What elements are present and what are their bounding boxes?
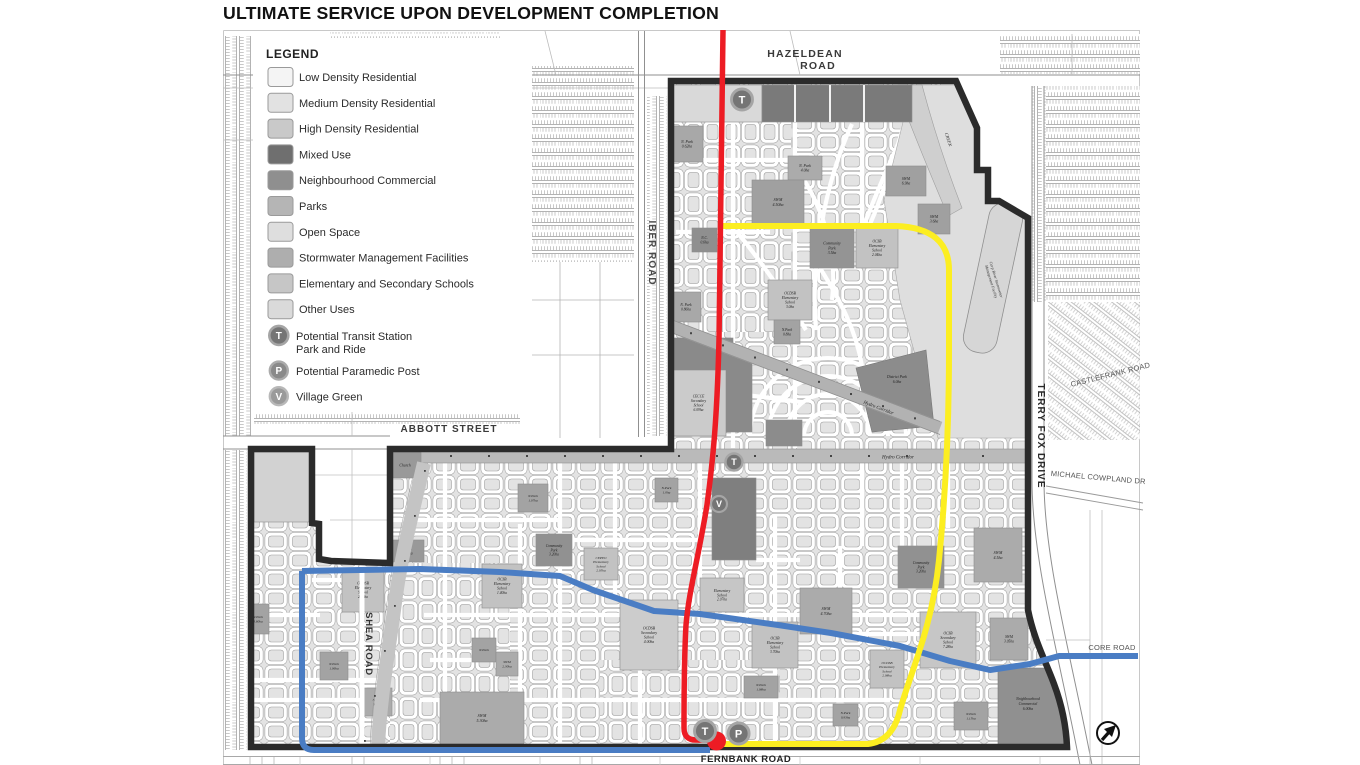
svg-text:SWM: SWM (930, 215, 939, 219)
svg-text:School: School (785, 301, 795, 305)
svg-text:Community: Community (913, 561, 930, 565)
svg-text:T: T (702, 726, 709, 738)
svg-text:Neighbourhood: Neighbourhood (1015, 697, 1040, 701)
svg-text:6.0ha: 6.0ha (893, 380, 902, 384)
svg-text:T: T (731, 457, 737, 467)
svg-text:Elementary: Elementary (493, 582, 511, 586)
svg-text:OCSB: OCSB (498, 578, 508, 582)
svg-text:3.5ha: 3.5ha (828, 251, 837, 255)
svg-text:Village Green: Village Green (296, 392, 362, 404)
svg-text:School: School (717, 593, 727, 597)
svg-text:P: P (275, 366, 282, 377)
svg-text:3.05ha: 3.05ha (1004, 640, 1014, 644)
svg-text:Stormwater Management Faciliti: Stormwater Management Facilities (299, 253, 469, 265)
svg-text:Low Density Residential: Low Density Residential (299, 72, 416, 84)
svg-text:N.C.: N.C. (700, 236, 708, 240)
svg-text:Hydro Corridor: Hydro Corridor (881, 456, 914, 461)
svg-text:6.00ha: 6.00ha (1023, 707, 1034, 711)
svg-text:4.5ha: 4.5ha (994, 555, 1003, 560)
svg-text:Neighbourhood Commercial: Neighbourhood Commercial (299, 175, 436, 187)
svg-text:Elementary and Secondary Schoo: Elementary and Secondary Schools (299, 278, 474, 290)
svg-text:0.62ha: 0.62ha (682, 145, 693, 149)
svg-text:TERRY FOX DRIVE: TERRY FOX DRIVE (1035, 383, 1046, 488)
svg-text:0.86ha: 0.86ha (681, 308, 691, 312)
svg-text:0.8ha: 0.8ha (783, 333, 791, 337)
svg-text:Medium Density Residential: Medium Density Residential (299, 98, 435, 110)
svg-text:T: T (276, 331, 282, 342)
svg-text:4.50ha: 4.50ha (773, 202, 784, 207)
svg-text:4.0ha: 4.0ha (801, 169, 810, 173)
svg-text:1.0ha: 1.0ha (663, 490, 671, 494)
svg-text:District Park: District Park (886, 375, 907, 379)
svg-text:N.Park: N.Park (781, 328, 793, 332)
svg-text:V: V (275, 392, 282, 403)
svg-text:2.05ha: 2.05ha (596, 569, 606, 573)
svg-text:ULTIMATE SERVICE UPON DEVELOPM: ULTIMATE SERVICE UPON DEVELOPMENT COMPLE… (223, 3, 719, 23)
svg-text:School: School (644, 636, 654, 640)
svg-text:CORE ROAD: CORE ROAD (1088, 643, 1136, 652)
svg-text:3.0ha: 3.0ha (786, 305, 794, 309)
svg-text:1.06ha: 1.06ha (329, 666, 339, 670)
svg-text:SWM: SWM (902, 177, 911, 181)
svg-text:SWM: SWM (1005, 635, 1014, 639)
svg-text:1.15ha: 1.15ha (966, 716, 976, 720)
svg-text:N. Park: N. Park (680, 140, 693, 144)
svg-text:1.07ha: 1.07ha (528, 498, 538, 502)
svg-text:Potential Transit Station: Potential Transit Station (296, 331, 412, 343)
svg-text:1.08ha: 1.08ha (756, 687, 766, 691)
svg-text:Secondary: Secondary (641, 631, 657, 635)
svg-text:2.30ha: 2.30ha (502, 664, 512, 668)
svg-text:OCDSB: OCDSB (784, 292, 796, 296)
svg-text:Open Space: Open Space (299, 227, 360, 239)
svg-text:2.08ha: 2.08ha (882, 674, 892, 678)
svg-text:OCDSB: OCDSB (643, 626, 656, 630)
svg-text:OCSB: OCSB (771, 637, 781, 641)
svg-text:0.80ha: 0.80ha (253, 619, 263, 623)
svg-text:School: School (872, 249, 882, 253)
svg-text:LEGEND: LEGEND (266, 47, 319, 61)
svg-text:2.04ha: 2.04ha (872, 253, 882, 257)
svg-text:Secondary: Secondary (691, 399, 707, 403)
svg-text:CECCE: CECCE (693, 395, 705, 399)
svg-text:3.20ha: 3.20ha (549, 553, 559, 557)
svg-text:School: School (943, 641, 953, 645)
svg-text:Park and Ride: Park and Ride (296, 344, 366, 356)
svg-text:6.9ha: 6.9ha (902, 182, 911, 186)
svg-text:3.20ha: 3.20ha (916, 570, 926, 574)
svg-text:Community: Community (823, 242, 841, 246)
svg-text:OCSB: OCSB (944, 632, 954, 636)
svg-text:Elementary: Elementary (781, 296, 799, 300)
svg-text:Parks: Parks (299, 201, 328, 213)
svg-text:Commercial: Commercial (1019, 702, 1038, 706)
svg-text:Potential Paramedic Post: Potential Paramedic Post (296, 366, 420, 378)
svg-text:4.00ha: 4.00ha (644, 640, 655, 644)
svg-text:1.40ha: 1.40ha (497, 591, 507, 595)
svg-text:N.Park: N.Park (478, 648, 489, 652)
svg-text:5.30ha: 5.30ha (477, 718, 488, 723)
svg-text:Park: Park (917, 565, 925, 569)
svg-text:Community: Community (546, 544, 563, 548)
svg-text:4.70ha: 4.70ha (821, 611, 832, 616)
svg-text:HAZELDEAN: HAZELDEAN (767, 48, 843, 60)
svg-text:Mixed Use: Mixed Use (299, 149, 351, 161)
svg-text:School: School (770, 646, 780, 650)
svg-text:6.09ha: 6.09ha (694, 408, 704, 412)
svg-text:V: V (716, 499, 722, 509)
svg-text:School: School (694, 404, 704, 408)
svg-text:0.6ha: 0.6ha (700, 241, 708, 245)
svg-text:Church: Church (399, 463, 410, 467)
svg-text:2.07ha: 2.07ha (717, 598, 727, 602)
svg-text:Park: Park (550, 548, 558, 552)
svg-text:N. Park: N. Park (798, 164, 811, 168)
svg-text:ROAD: ROAD (800, 60, 836, 72)
svg-text:0.93ha: 0.93ha (841, 715, 851, 719)
svg-text:High Density Residential: High Density Residential (299, 124, 419, 136)
svg-text:FERNBANK ROAD: FERNBANK ROAD (701, 754, 791, 765)
svg-text:OCSB: OCSB (873, 240, 883, 244)
svg-text:ABBOTT STREET: ABBOTT STREET (401, 424, 498, 435)
svg-text:Elementary: Elementary (713, 589, 731, 593)
svg-text:N. Park: N. Park (679, 303, 692, 307)
svg-text:Park: Park (827, 246, 836, 250)
svg-text:SHEA ROAD: SHEA ROAD (363, 612, 374, 676)
svg-text:7.28ha: 7.28ha (943, 645, 953, 649)
svg-text:Secondary: Secondary (940, 636, 956, 640)
svg-text:Elementary: Elementary (766, 641, 784, 645)
svg-text:P: P (735, 729, 742, 741)
svg-text:Other Uses: Other Uses (299, 304, 355, 316)
svg-text:T: T (739, 95, 746, 107)
svg-text:School: School (497, 587, 507, 591)
svg-text:Elementary: Elementary (868, 244, 886, 248)
svg-text:3.6ha: 3.6ha (930, 220, 939, 224)
svg-text:3.70ha: 3.70ha (770, 650, 780, 654)
svg-text:IBER ROAD: IBER ROAD (646, 220, 657, 285)
